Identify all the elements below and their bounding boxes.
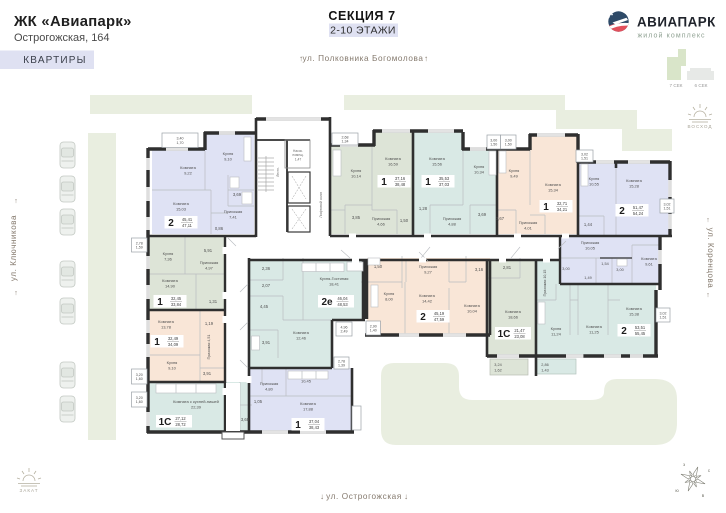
svg-text:3,69: 3,69 — [233, 192, 242, 197]
svg-text:СЕКЦИЯ 7: СЕКЦИЯ 7 — [328, 9, 395, 23]
svg-text:3,91: 3,91 — [203, 371, 212, 376]
svg-text:1,60: 1,60 — [136, 377, 143, 381]
svg-text:↑: ↑ — [299, 54, 303, 63]
svg-text:33,84: 33,84 — [171, 302, 182, 307]
svg-text:↑: ↑ — [14, 198, 18, 205]
svg-text:1,31: 1,31 — [209, 299, 218, 304]
svg-text:Прихожая: Прихожая — [200, 260, 219, 265]
svg-text:55,45: 55,45 — [635, 331, 646, 336]
svg-text:1,59: 1,59 — [136, 246, 143, 250]
svg-text:Комната: Комната — [180, 165, 196, 170]
svg-text:Прихожая 10,15: Прихожая 10,15 — [543, 270, 547, 297]
svg-text:1,44: 1,44 — [584, 222, 593, 227]
svg-text:1,05: 1,05 — [254, 399, 263, 404]
svg-text:4,80: 4,80 — [265, 386, 274, 391]
svg-text:1,40: 1,40 — [370, 329, 377, 333]
svg-text:1,47: 1,47 — [295, 158, 302, 162]
svg-text:1: 1 — [295, 420, 301, 431]
svg-text:Кухня: Кухня — [474, 164, 485, 169]
svg-text:Кухня: Кухня — [551, 326, 562, 331]
svg-text:1,50: 1,50 — [505, 143, 512, 147]
svg-text:Комната: Комната — [641, 256, 657, 261]
svg-text:1,51: 1,51 — [660, 316, 667, 320]
svg-text:Прихожая 4,51: Прихожая 4,51 — [207, 335, 211, 360]
svg-text:32,45: 32,45 — [171, 296, 182, 301]
svg-text:13,78: 13,78 — [161, 324, 172, 329]
svg-text:ЗАКАТ: ЗАКАТ — [19, 488, 38, 493]
svg-text:1: 1 — [157, 297, 163, 308]
svg-text:38,48: 38,48 — [395, 182, 406, 187]
svg-text:з: з — [683, 462, 685, 467]
svg-text:Острогожская, 164: Острогожская, 164 — [14, 32, 110, 44]
svg-text:34,09: 34,09 — [168, 342, 179, 347]
svg-text:9,10: 9,10 — [168, 365, 177, 370]
svg-text:Комната: Комната — [545, 182, 561, 187]
svg-text:3,68: 3,68 — [241, 417, 250, 422]
svg-text:15,56: 15,56 — [432, 161, 443, 166]
svg-text:1,34: 1,34 — [342, 140, 349, 144]
svg-text:7,36: 7,36 — [164, 256, 173, 261]
svg-text:10,34: 10,34 — [474, 169, 485, 174]
svg-text:10,05: 10,05 — [585, 245, 596, 250]
svg-text:38,43: 38,43 — [309, 425, 320, 430]
svg-text:ул. Коренцова: ул. Коренцова — [706, 228, 715, 289]
svg-text:2,86: 2,86 — [541, 363, 548, 367]
svg-text:Лестн.: Лестн. — [276, 167, 280, 177]
svg-text:47,11: 47,11 — [182, 223, 193, 228]
svg-text:10,14: 10,14 — [351, 173, 362, 178]
svg-text:2: 2 — [168, 218, 174, 229]
svg-text:23,08: 23,08 — [514, 334, 525, 339]
svg-text:21,47: 21,47 — [514, 328, 525, 333]
svg-text:2,36: 2,36 — [262, 266, 271, 271]
svg-text:16,59: 16,59 — [388, 161, 399, 166]
svg-text:1С: 1С — [498, 329, 511, 340]
svg-text:15,34: 15,34 — [548, 187, 559, 192]
svg-text:9,49: 9,49 — [510, 173, 519, 178]
svg-text:15,28: 15,28 — [629, 183, 640, 188]
svg-text:22,39: 22,39 — [191, 404, 202, 409]
svg-text:Лифтовой холл: Лифтовой холл — [319, 192, 323, 218]
svg-text:47,59: 47,59 — [434, 317, 445, 322]
svg-text:46,04: 46,04 — [337, 296, 348, 301]
svg-text:Кухня: Кухня — [163, 251, 174, 256]
svg-text:7,41: 7,41 — [229, 214, 238, 219]
svg-text:11,24: 11,24 — [551, 331, 561, 336]
svg-text:18,41: 18,41 — [329, 281, 340, 286]
svg-text:1,51: 1,51 — [581, 157, 588, 161]
svg-text:3,16: 3,16 — [475, 267, 484, 272]
svg-text:АВИАПАРК: АВИАПАРК — [637, 15, 716, 30]
svg-text:Кухня: Кухня — [351, 168, 362, 173]
svg-text:4,66: 4,66 — [377, 221, 386, 226]
svg-text:3,00: 3,00 — [616, 268, 623, 272]
svg-text:17,88: 17,88 — [303, 406, 314, 411]
svg-text:1,19: 1,19 — [205, 321, 214, 326]
svg-text:9,27: 9,27 — [424, 269, 433, 274]
svg-text:3,67: 3,67 — [496, 216, 505, 221]
svg-text:2: 2 — [420, 312, 426, 323]
svg-text:45,41: 45,41 — [182, 217, 193, 222]
svg-text:Комната: Комната — [626, 178, 642, 183]
svg-text:↑: ↑ — [424, 54, 428, 63]
svg-text:2,07: 2,07 — [262, 283, 271, 288]
svg-text:1: 1 — [425, 177, 431, 188]
svg-text:помещ.: помещ. — [293, 153, 304, 157]
svg-text:54,24: 54,24 — [633, 211, 644, 216]
svg-text:9,22: 9,22 — [184, 170, 193, 175]
svg-text:53,51: 53,51 — [635, 325, 646, 330]
svg-text:↓: ↓ — [320, 492, 324, 501]
svg-text:Комната: Комната — [385, 156, 401, 161]
svg-text:7 СЕК: 7 СЕК — [670, 83, 683, 88]
svg-text:5,91: 5,91 — [204, 248, 213, 253]
svg-text:Прихожая: Прихожая — [224, 209, 243, 214]
svg-text:1,62: 1,62 — [494, 369, 501, 373]
svg-text:1: 1 — [154, 337, 160, 348]
svg-text:1,49: 1,49 — [584, 276, 591, 280]
svg-text:45,19: 45,19 — [434, 311, 445, 316]
svg-text:2е: 2е — [321, 297, 333, 308]
svg-text:3,24: 3,24 — [494, 363, 501, 367]
svg-text:9,61: 9,61 — [645, 261, 654, 266]
svg-text:Комната: Комната — [173, 201, 189, 206]
svg-text:Комната: Комната — [419, 293, 435, 298]
svg-text:1,28: 1,28 — [419, 206, 428, 211]
svg-text:4,97: 4,97 — [205, 265, 214, 270]
svg-text:37,03: 37,03 — [439, 182, 450, 187]
svg-text:ВОСХОД: ВОСХОД — [687, 124, 712, 129]
svg-text:2,81: 2,81 — [503, 265, 512, 270]
svg-text:18,66: 18,66 — [508, 314, 519, 319]
svg-text:Комната: Комната — [505, 309, 521, 314]
svg-text:9,10: 9,10 — [224, 156, 233, 161]
svg-text:51,47: 51,47 — [633, 205, 644, 210]
svg-text:2: 2 — [619, 206, 625, 217]
svg-text:15,38: 15,38 — [629, 311, 640, 316]
svg-text:2-10 ЭТАЖИ: 2-10 ЭТАЖИ — [330, 25, 396, 37]
svg-text:2,49: 2,49 — [341, 330, 348, 334]
svg-text:12,46: 12,46 — [296, 335, 307, 340]
svg-text:1,50: 1,50 — [400, 218, 409, 223]
svg-text:6 СЕК: 6 СЕК — [695, 83, 708, 88]
svg-text:37,16: 37,16 — [395, 176, 406, 181]
svg-text:32,71: 32,71 — [557, 201, 568, 206]
svg-text:↑: ↑ — [14, 290, 18, 297]
svg-text:14,42: 14,42 — [422, 298, 433, 303]
svg-text:Кухня: Кухня — [384, 291, 395, 296]
svg-text:35,53: 35,53 — [439, 176, 450, 181]
svg-text:28,72: 28,72 — [175, 422, 186, 427]
svg-text:15,03: 15,03 — [176, 206, 187, 211]
svg-text:Кухня: Кухня — [509, 168, 520, 173]
svg-text:37,04: 37,04 — [309, 419, 320, 424]
svg-text:ул. Острогожская: ул. Острогожская — [326, 492, 402, 501]
svg-text:3,00: 3,00 — [562, 267, 569, 271]
svg-text:Прихожая: Прихожая — [581, 240, 600, 245]
svg-text:ул. Полковника Богомолова: ул. Полковника Богомолова — [302, 54, 423, 63]
svg-text:Прихожая: Прихожая — [372, 216, 391, 221]
svg-text:1: 1 — [543, 202, 549, 213]
svg-text:34,21: 34,21 — [557, 207, 568, 212]
svg-text:3,91: 3,91 — [262, 340, 271, 345]
svg-text:3,85: 3,85 — [352, 215, 361, 220]
svg-text:4,88: 4,88 — [448, 221, 457, 226]
svg-text:1,39: 1,39 — [338, 364, 345, 368]
svg-text:Комната: Комната — [429, 156, 445, 161]
svg-text:1,50: 1,50 — [490, 143, 497, 147]
svg-text:0,86: 0,86 — [215, 226, 224, 231]
svg-text:↓: ↓ — [404, 492, 408, 501]
svg-text:1,60: 1,60 — [136, 400, 143, 404]
svg-text:Комната: Комната — [464, 303, 480, 308]
svg-text:Прихожая: Прихожая — [260, 381, 279, 386]
svg-text:8,00: 8,00 — [385, 296, 394, 301]
svg-text:жилой комплекс: жилой комплекс — [638, 32, 706, 40]
svg-text:Кухня-Гостиная: Кухня-Гостиная — [320, 276, 349, 281]
svg-text:Комната: Комната — [586, 324, 602, 329]
svg-text:4,45: 4,45 — [260, 304, 269, 309]
svg-text:32,49: 32,49 — [168, 336, 179, 341]
svg-text:4,01: 4,01 — [524, 225, 533, 230]
svg-text:27,12: 27,12 — [175, 416, 186, 421]
svg-text:Комната с кухней-нишей: Комната с кухней-нишей — [173, 399, 219, 404]
svg-text:3,69: 3,69 — [478, 212, 487, 217]
svg-text:14,90: 14,90 — [165, 283, 176, 288]
svg-text:2: 2 — [621, 326, 627, 337]
svg-text:Комната: Комната — [300, 401, 316, 406]
svg-text:Кухня: Кухня — [589, 176, 600, 181]
svg-text:48,53: 48,53 — [337, 302, 348, 307]
svg-text:1С: 1С — [159, 417, 172, 428]
svg-text:1,43: 1,43 — [541, 369, 548, 373]
svg-text:Прихожая: Прихожая — [419, 264, 438, 269]
svg-text:10,55: 10,55 — [589, 181, 600, 186]
svg-text:1: 1 — [381, 177, 387, 188]
svg-text:1,51: 1,51 — [664, 207, 671, 211]
svg-text:ул. Ключникова: ул. Ключникова — [9, 215, 18, 281]
svg-text:1,54: 1,54 — [601, 262, 608, 266]
svg-text:↑: ↑ — [706, 217, 710, 224]
svg-text:11,25: 11,25 — [589, 329, 599, 334]
svg-text:Кухня: Кухня — [223, 151, 234, 156]
svg-text:Комната: Комната — [626, 306, 642, 311]
svg-text:КВАРТИРЫ: КВАРТИРЫ — [23, 55, 86, 66]
svg-text:Комната: Комната — [162, 278, 178, 283]
svg-text:Прихожая: Прихожая — [443, 216, 462, 221]
svg-text:ЖК «Авиапарк»: ЖК «Авиапарк» — [13, 14, 132, 30]
svg-text:Прихожая: Прихожая — [519, 220, 538, 225]
svg-text:↑: ↑ — [706, 292, 710, 299]
svg-text:10,04: 10,04 — [467, 308, 478, 313]
svg-text:Кухня: Кухня — [167, 360, 178, 365]
svg-text:Комната: Комната — [158, 319, 174, 324]
svg-text:1,70: 1,70 — [177, 141, 184, 145]
svg-text:Комната: Комната — [293, 330, 309, 335]
